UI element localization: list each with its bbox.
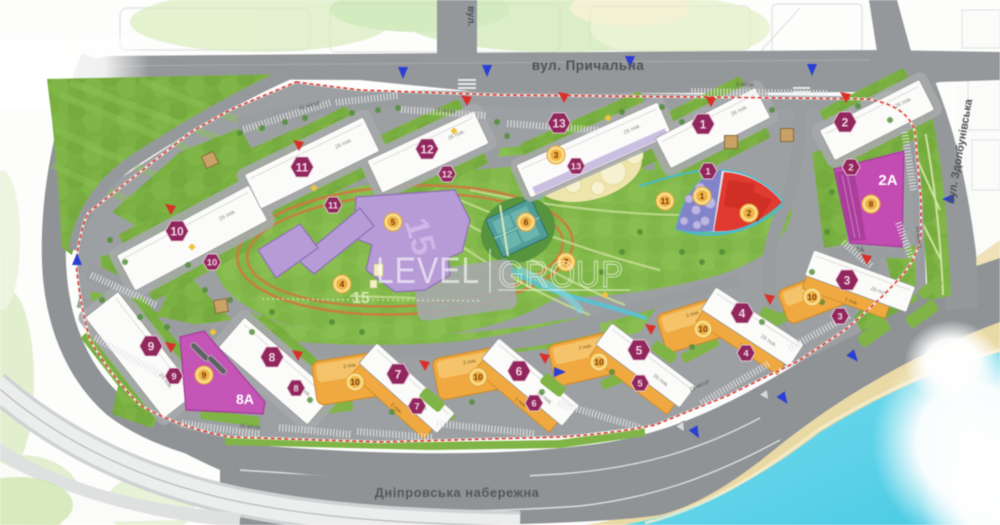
svg-text:13: 13 <box>552 116 566 130</box>
svg-text:2А: 2А <box>878 172 897 189</box>
svg-text:8: 8 <box>269 350 276 364</box>
svg-text:2: 2 <box>747 208 752 218</box>
svg-text:15: 15 <box>352 290 370 307</box>
svg-text:1: 1 <box>700 191 705 201</box>
svg-text:10: 10 <box>170 224 184 238</box>
svg-text:вул. Причальна: вул. Причальна <box>532 58 645 73</box>
svg-text:8А: 8А <box>236 391 254 407</box>
svg-text:12: 12 <box>420 142 434 156</box>
svg-text:13: 13 <box>571 161 582 172</box>
svg-text:9: 9 <box>171 371 176 382</box>
svg-text:9: 9 <box>148 339 155 353</box>
svg-text:11: 11 <box>661 196 670 206</box>
svg-text:5: 5 <box>636 343 643 357</box>
svg-text:6: 6 <box>524 217 529 227</box>
svg-text:Дніпровська набережна: Дніпровська набережна <box>375 485 540 500</box>
svg-text:4: 4 <box>739 306 746 320</box>
svg-text:4: 4 <box>340 279 345 289</box>
svg-text:11: 11 <box>328 200 339 211</box>
svg-text:LEVEL: LEVEL <box>376 250 480 291</box>
svg-text:8: 8 <box>293 383 298 394</box>
svg-text:7: 7 <box>414 401 419 412</box>
svg-text:9 місць: 9 місць <box>736 82 754 88</box>
svg-text:10: 10 <box>698 324 708 334</box>
svg-text:3: 3 <box>837 311 842 322</box>
svg-text:3: 3 <box>554 150 559 160</box>
svg-text:5: 5 <box>637 378 643 389</box>
svg-text:11: 11 <box>296 160 309 174</box>
svg-text:10: 10 <box>594 357 604 367</box>
svg-text:6: 6 <box>516 364 523 378</box>
svg-text:1: 1 <box>700 117 707 131</box>
svg-text:2: 2 <box>842 115 849 129</box>
svg-text:10: 10 <box>473 372 483 382</box>
svg-text:8: 8 <box>869 199 874 209</box>
svg-text:10: 10 <box>207 257 218 268</box>
svg-text:GROUP: GROUP <box>498 254 624 295</box>
svg-text:4: 4 <box>743 348 749 359</box>
svg-text:1: 1 <box>705 166 711 177</box>
svg-text:7: 7 <box>395 367 402 381</box>
svg-text:3: 3 <box>844 273 851 287</box>
svg-text:26 місць: 26 місць <box>239 423 261 430</box>
svg-text:10: 10 <box>350 377 360 387</box>
svg-text:2: 2 <box>848 162 853 173</box>
svg-text:9: 9 <box>202 370 207 380</box>
svg-text:10: 10 <box>807 292 817 302</box>
svg-text:6: 6 <box>531 398 536 409</box>
svg-text:вул.: вул. <box>465 6 476 27</box>
svg-text:12: 12 <box>442 169 453 180</box>
svg-text:5: 5 <box>391 217 396 227</box>
